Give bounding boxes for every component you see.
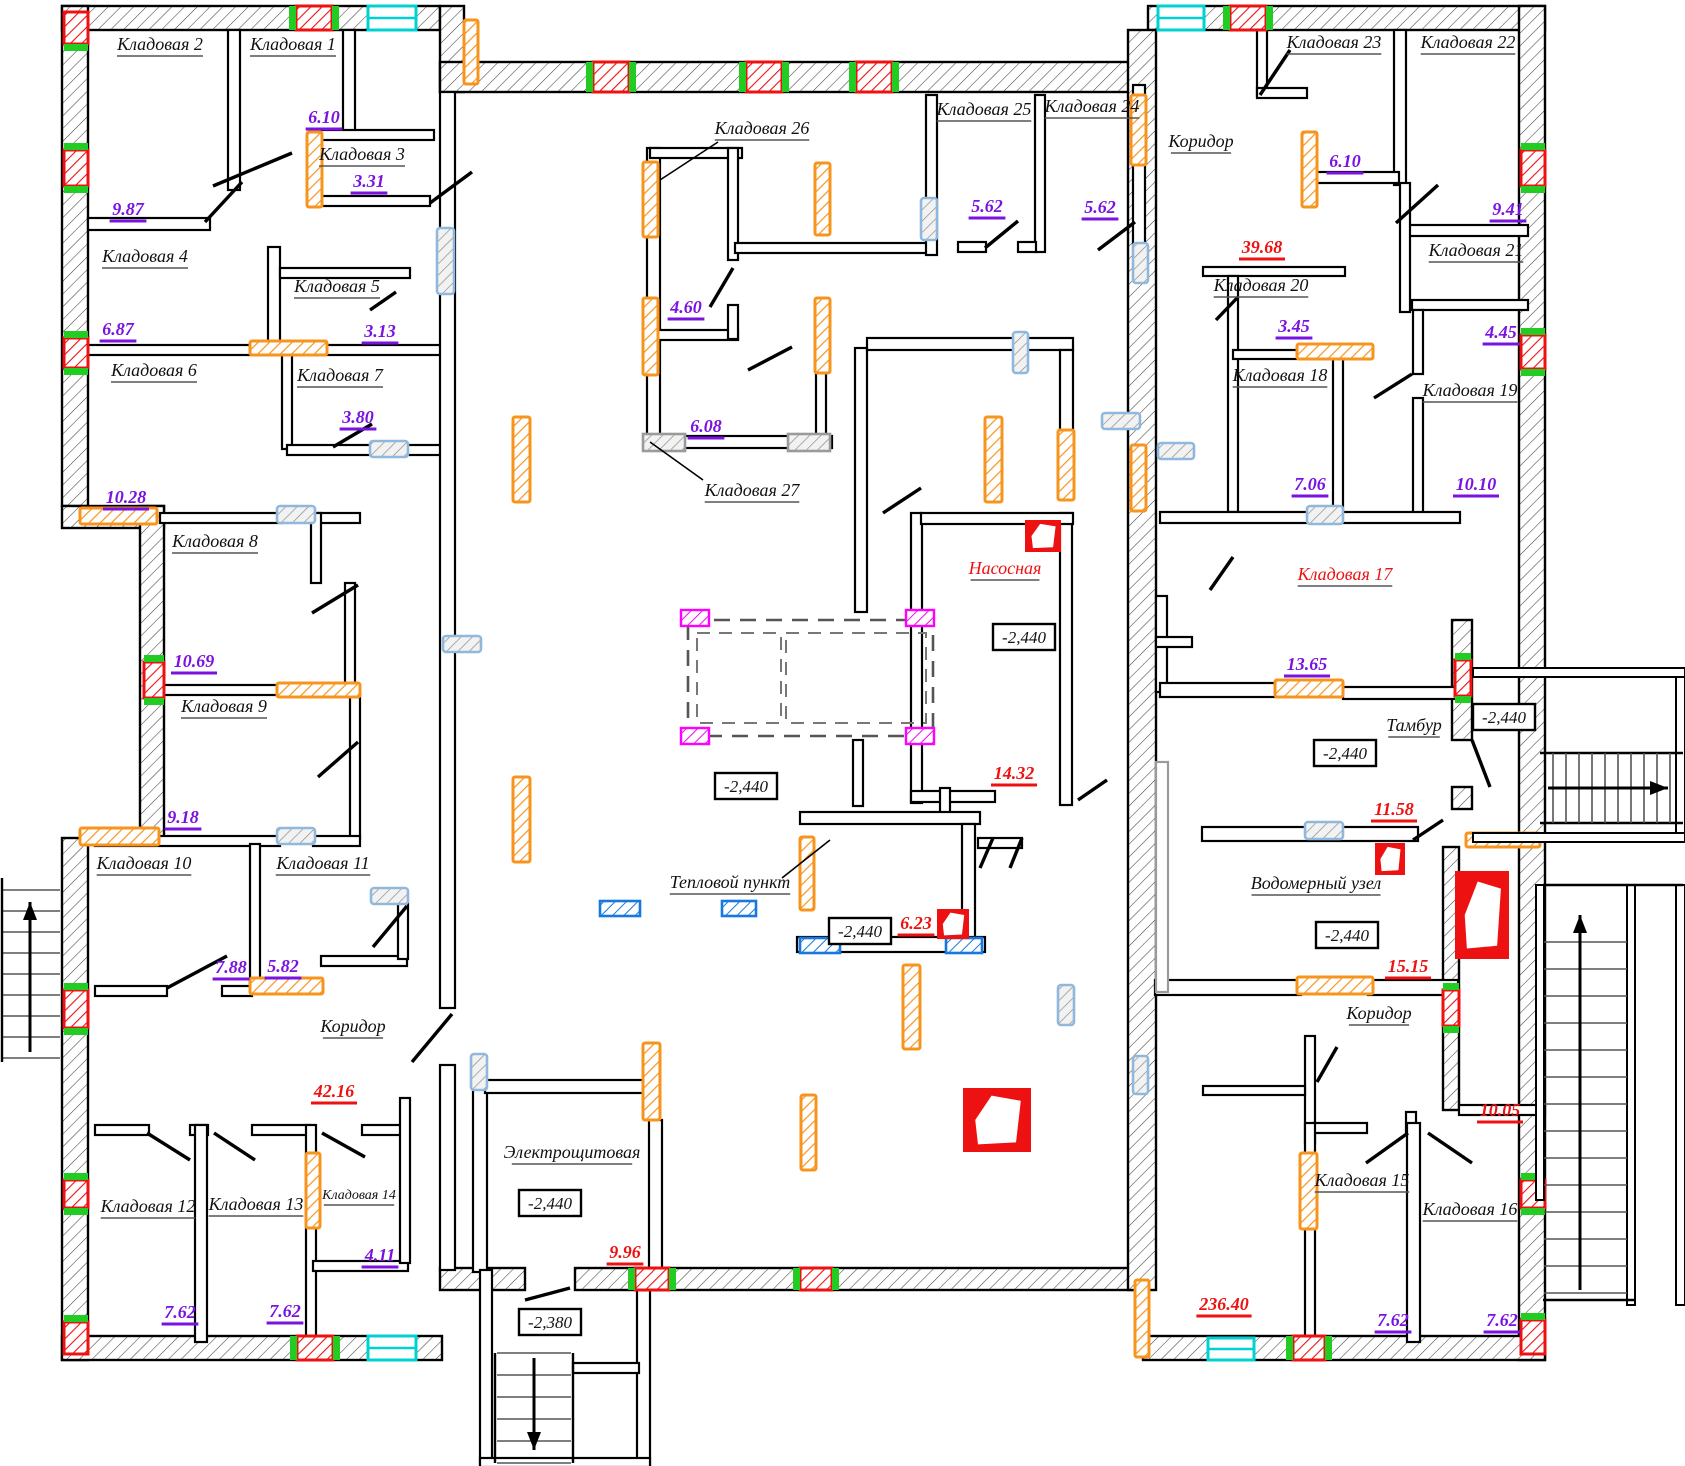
staircase-right-bottom <box>1536 885 1685 1305</box>
area-value-k10: 7.88 <box>215 957 247 977</box>
room-label-bottom_right: Коридор <box>1345 1003 1411 1023</box>
room-label-k27: Кладовая 27 <box>704 480 801 500</box>
room-label-k8: Кладовая 8 <box>171 531 258 551</box>
lift-pad-icon <box>906 610 934 626</box>
area-value-pump_room: 14.32 <box>994 763 1035 783</box>
room-label-k3: Кладовая 3 <box>318 144 405 164</box>
room-label-k20: Кладовая 20 <box>1213 275 1309 295</box>
room-label-k12: Кладовая 12 <box>100 1196 196 1216</box>
area-value-water_meter_unit: 15.15 <box>1388 956 1429 976</box>
area-value-left: 42.16 <box>313 1081 355 1101</box>
room-label-k25: Кладовая 25 <box>936 99 1032 119</box>
elevation-value: -2,440 <box>1323 744 1367 763</box>
area-value-k16: 7.62 <box>1486 1310 1518 1330</box>
elevation-value: -2,440 <box>528 1194 572 1213</box>
room-label-k1: Кладовая 1 <box>249 34 336 54</box>
room-label-k5: Кладовая 5 <box>293 276 380 296</box>
staircase-left <box>2 878 60 1062</box>
area-value-k15: 7.62 <box>1377 1310 1409 1330</box>
area-value-plan: 236.40 <box>1198 1294 1249 1314</box>
room-label-k6: Кладовая 6 <box>110 360 197 380</box>
area-value-k3: 3.31 <box>352 171 385 191</box>
area-value-k1: 6.10 <box>308 107 340 127</box>
area-value-k2: 9.87 <box>112 199 145 219</box>
room-label-k18: Кладовая 18 <box>1232 365 1328 385</box>
area-value-k27: 6.08 <box>690 416 722 436</box>
area-value-heat_point: 6.23 <box>900 913 932 933</box>
area-value-k4: 6.87 <box>102 319 135 339</box>
area-value-electrical_room: 9.96 <box>609 1242 641 1262</box>
room-label-k23: Кладовая 23 <box>1286 32 1382 52</box>
area-value-bottom_right: 10.05 <box>1480 1100 1521 1120</box>
area-value-k5: 3.13 <box>363 321 396 341</box>
lift-pad-icon <box>681 610 709 626</box>
room-label-k16: Кладовая 16 <box>1422 1199 1518 1219</box>
area-value-k24: 5.62 <box>1084 197 1116 217</box>
room-label-k13: Кладовая 13 <box>208 1194 304 1214</box>
room-label-k4: Кладовая 4 <box>101 246 188 266</box>
room-label-k11: Кладовая 11 <box>275 853 369 873</box>
area-value-k8: 10.69 <box>174 651 215 671</box>
lift-pad-icon <box>906 728 934 744</box>
elevation-value: -2,380 <box>528 1313 572 1332</box>
elevation-value: -2,440 <box>1325 926 1369 945</box>
area-value-k26: 4.60 <box>669 297 702 317</box>
elevation-value: -2,440 <box>724 777 768 796</box>
staircase-bottom-center <box>495 1353 573 1463</box>
room-label-k15: Кладовая 15 <box>1314 1170 1410 1190</box>
room-label-left: Коридор <box>319 1016 385 1036</box>
room-label-k9: Кладовая 9 <box>180 696 267 716</box>
area-value-k20: 3.45 <box>1277 316 1310 336</box>
area-value-k17: 13.65 <box>1287 654 1328 674</box>
floor-plan-drawing: -2,440-2,440-2,440-2,440-2,440-2,440-2,4… <box>0 0 1685 1466</box>
area-value-k22: 9.41 <box>1492 199 1524 219</box>
pilasters-orange <box>80 20 1540 1357</box>
area-value-k18: 7.06 <box>1294 474 1326 494</box>
area-value-k25: 5.62 <box>971 196 1003 216</box>
room-label-k10: Кладовая 10 <box>96 853 192 873</box>
room-label-k19: Кладовая 19 <box>1422 380 1518 400</box>
area-value-k9: 9.18 <box>167 807 199 827</box>
elevation-value: -2,440 <box>838 922 882 941</box>
area-value-k21: 4.45 <box>1484 322 1517 342</box>
area-value-k14: 4.11 <box>364 1245 396 1265</box>
room-label-heat_point: Тепловой пункт <box>670 872 791 892</box>
lift-pad-icon <box>681 728 709 744</box>
elevation-value: -2,440 <box>1002 628 1046 647</box>
area-value-top_right: 39.68 <box>1241 237 1283 257</box>
area-value-vent_shaft_area: 11.58 <box>1374 799 1414 819</box>
area-value-k13: 7.62 <box>269 1301 301 1321</box>
room-label-k14: Кладовая 14 <box>321 1188 396 1203</box>
room-label-k24: Кладовая 24 <box>1044 96 1140 116</box>
room-label-k7: Кладовая 7 <box>296 365 384 385</box>
area-value-k19: 10.10 <box>1456 474 1497 494</box>
room-label-electrical_room: Электрощитовая <box>504 1142 641 1162</box>
room-label-k2: Кладовая 2 <box>116 34 203 54</box>
room-label-k22: Кладовая 22 <box>1420 32 1516 52</box>
area-value-k23: 6.10 <box>1329 151 1361 171</box>
area-value-k6: 10.28 <box>106 487 147 507</box>
room-label-water_meter_unit: Водомерный узел <box>1251 873 1382 893</box>
room-label-vestibule: Тамбур <box>1386 715 1441 735</box>
area-value-k12: 7.62 <box>164 1302 196 1322</box>
area-value-k11: 5.82 <box>267 956 299 976</box>
area-value-k7: 3.80 <box>341 407 374 427</box>
staircase-right-top <box>1473 668 1685 842</box>
room-label-pump_room: Насосная <box>968 558 1042 578</box>
room-label-top_right: Коридор <box>1167 131 1233 151</box>
elevation-value: -2,440 <box>1482 708 1526 727</box>
room-label-k17: Кладовая 17 <box>1297 564 1394 584</box>
lift-shaft <box>681 610 934 744</box>
floor-plan-svg: -2,440-2,440-2,440-2,440-2,440-2,440-2,4… <box>0 0 1685 1466</box>
room-label-k26: Кладовая 26 <box>714 118 810 138</box>
room-label-k21: Кладовая 21 <box>1428 240 1524 260</box>
